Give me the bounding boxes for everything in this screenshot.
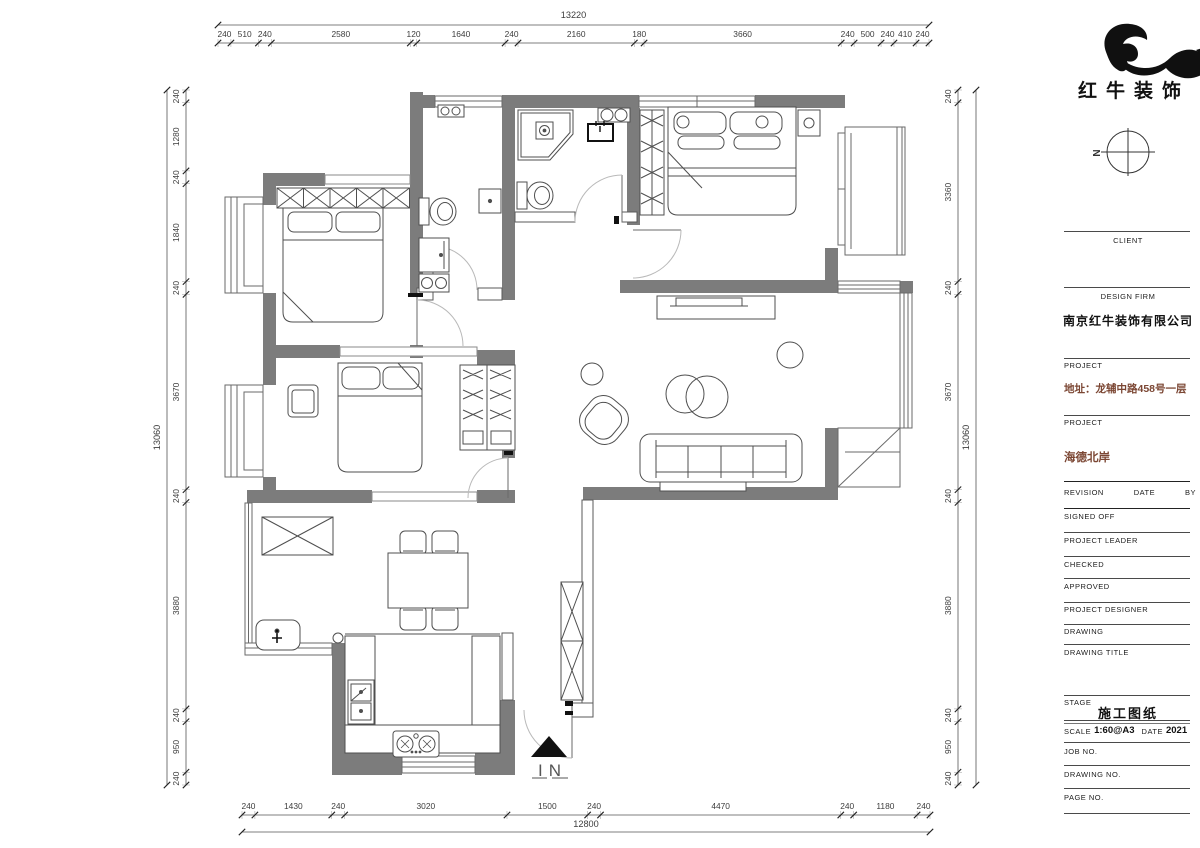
divider [1064, 742, 1190, 743]
divider [1064, 415, 1190, 416]
dim-label: 240 [171, 489, 181, 503]
dim-label: 240 [841, 29, 855, 39]
bath-cabinet-icon [419, 238, 449, 272]
dim-label: 3360 [943, 183, 953, 202]
shower-icon [518, 110, 573, 160]
window-icon [900, 293, 912, 428]
nightstand-icon [798, 110, 820, 136]
dim-label: 240 [917, 801, 931, 811]
dim-label: 240 [241, 801, 255, 811]
dim-label: 410 [898, 29, 912, 39]
dim-label: 1280 [171, 127, 181, 146]
dim-label: 240 [943, 771, 953, 785]
divider [1064, 532, 1190, 533]
dim-label: 510 [238, 29, 252, 39]
dim-label: 950 [943, 740, 953, 754]
wardrobe-icon [460, 365, 515, 450]
bed-icon [283, 208, 383, 322]
dim-label: 240 [331, 801, 345, 811]
dim-label: 1840 [171, 223, 181, 242]
bed-icon [668, 107, 796, 215]
bed-icon [338, 363, 422, 472]
divider [1064, 720, 1190, 721]
washer-icon [419, 274, 449, 292]
tv-cabinet-icon [657, 296, 775, 319]
dim-label: 13060 [961, 425, 971, 451]
door-arc-icon [575, 175, 622, 222]
window-icon [639, 96, 755, 107]
thin-walls [417, 212, 637, 717]
dim-label: 3670 [943, 382, 953, 401]
floor-plan-sheet: IN 2405102402580120164024021601803660240… [0, 0, 1200, 848]
project-leader-label: PROJECT LEADER [1062, 536, 1196, 545]
dim-label: 13060 [152, 425, 162, 451]
date-label: DATE [1134, 488, 1155, 497]
wardrobe-icon [277, 188, 410, 208]
coffee-table-icon [666, 375, 728, 418]
divider [1064, 813, 1190, 814]
scale-label: SCALE [1064, 727, 1091, 736]
dim-label: 13220 [561, 10, 587, 20]
divider [1064, 481, 1190, 482]
side-table-icon [581, 363, 603, 385]
dim-label: 240 [943, 708, 953, 722]
divider [1064, 602, 1190, 603]
dim-label: 240 [943, 89, 953, 103]
drawing-title-label: DRAWING TITLE [1062, 648, 1196, 657]
sofa-icon [640, 434, 802, 491]
entrance-arrow-icon [531, 736, 567, 757]
dim-label: 180 [632, 29, 646, 39]
date-value: 2021 [1166, 725, 1187, 736]
design-firm-name: 南京红牛装饰有限公司 [1062, 312, 1194, 329]
title-block: 红牛装饰 CLIENT DESIGN FIRM 南京红牛装饰有限公司 PROJE… [1062, 0, 1194, 848]
divider [1064, 695, 1190, 696]
dim-label: 240 [943, 489, 953, 503]
divider [1064, 556, 1190, 557]
job-no-label: JOB NO. [1062, 747, 1196, 756]
dim-label: 240 [505, 29, 519, 39]
divider [1064, 508, 1190, 509]
divider [1064, 578, 1190, 579]
signed-off-label: SIGNED OFF [1062, 512, 1196, 521]
door-arc-icon [417, 300, 463, 346]
dim-label: 240 [916, 29, 930, 39]
stove-icon [393, 731, 439, 757]
divider [1064, 287, 1190, 288]
project-name: 海德北岸 [1062, 449, 1196, 465]
drawing-no-label: DRAWING NO. [1062, 770, 1196, 779]
divider [1064, 765, 1190, 766]
project-label: PROJECT [1062, 418, 1196, 427]
client-label: CLIENT [1062, 236, 1194, 245]
project-address: 地址：龙辅中路458号一层 [1062, 381, 1196, 396]
dim-label: 3880 [171, 596, 181, 615]
side-table-icon [777, 342, 803, 368]
by-label: BY [1185, 488, 1196, 497]
dim-label: 240 [171, 708, 181, 722]
drawing-label: DRAWING [1062, 627, 1196, 636]
dim-label: 500 [861, 29, 875, 39]
dim-label: 240 [881, 29, 895, 39]
laundry-sink-icon [256, 620, 300, 650]
window-icon [402, 756, 475, 773]
dim-label: 240 [171, 771, 181, 785]
scale-value: 1:60@A3 [1094, 725, 1134, 736]
dim-label: 1430 [284, 801, 303, 811]
dim-label: 240 [840, 801, 854, 811]
floor-plan-drawing: IN 2405102402580120164024021601803660240… [0, 0, 1200, 848]
divider [1064, 231, 1190, 232]
dim-label: 240 [943, 281, 953, 295]
balcony-window-icon [838, 127, 905, 255]
dim-label: 3880 [943, 596, 953, 615]
checked-label: CHECKED [1062, 560, 1196, 569]
corner-window-icon [838, 428, 900, 487]
logo-text: 红牛装饰 [1062, 76, 1200, 103]
basin-icon [598, 108, 630, 122]
dim-label: 1180 [876, 801, 894, 811]
dim-label: 3660 [733, 29, 752, 39]
dim-label: 240 [258, 29, 272, 39]
page-no-label: PAGE NO. [1062, 793, 1196, 802]
dim-label: 2580 [331, 29, 350, 39]
window-icon [245, 503, 252, 643]
armchair-icon [288, 385, 318, 417]
dim-label: 950 [171, 740, 181, 754]
dim-label: 240 [171, 89, 181, 103]
design-firm-label: DESIGN FIRM [1062, 292, 1194, 301]
revision-label: REVISION [1064, 488, 1104, 497]
dining-table-icon [388, 531, 468, 630]
dim-label: 3670 [171, 382, 181, 401]
shoe-cabinet-icon [561, 582, 583, 700]
dim-label: 1500 [538, 801, 557, 811]
entrance-label: IN [538, 761, 567, 780]
dim-label: 240 [171, 281, 181, 295]
floor-drain-icon [479, 189, 501, 213]
project-label: PROJECT [1062, 361, 1196, 370]
bay-window-icon [225, 385, 263, 477]
divider [1064, 723, 1190, 724]
dim-label: 4470 [711, 801, 730, 811]
toilet-icon [419, 198, 456, 225]
approved-label: APPROVED [1062, 582, 1196, 591]
dim-label: 2160 [567, 29, 586, 39]
window-icon [838, 281, 900, 293]
dim-label: 12800 [573, 819, 599, 829]
kitchen-sink-icon [348, 680, 374, 724]
divider [1064, 624, 1190, 625]
bay-window-icon [225, 197, 263, 293]
dim-label: 3020 [417, 801, 436, 811]
divider [1064, 788, 1190, 789]
toilet-icon [517, 182, 553, 209]
dim-label: 240 [217, 29, 231, 39]
dim-label: 240 [587, 801, 601, 811]
dim-label: 120 [407, 29, 421, 39]
date-label: DATE [1142, 727, 1163, 736]
door-arc-icon [633, 230, 681, 278]
wardrobe-icon [640, 110, 664, 215]
dim-label: 240 [171, 170, 181, 184]
fridge-cabinet-icon [262, 517, 333, 555]
dim-label: 1640 [452, 29, 471, 39]
divider [1064, 358, 1190, 359]
water-heater-icon [438, 105, 464, 117]
project-designer-label: PROJECT DESIGNER [1062, 605, 1196, 614]
lounge-chair-icon [573, 389, 635, 451]
washbasin-icon [588, 121, 613, 141]
divider [1064, 644, 1190, 645]
